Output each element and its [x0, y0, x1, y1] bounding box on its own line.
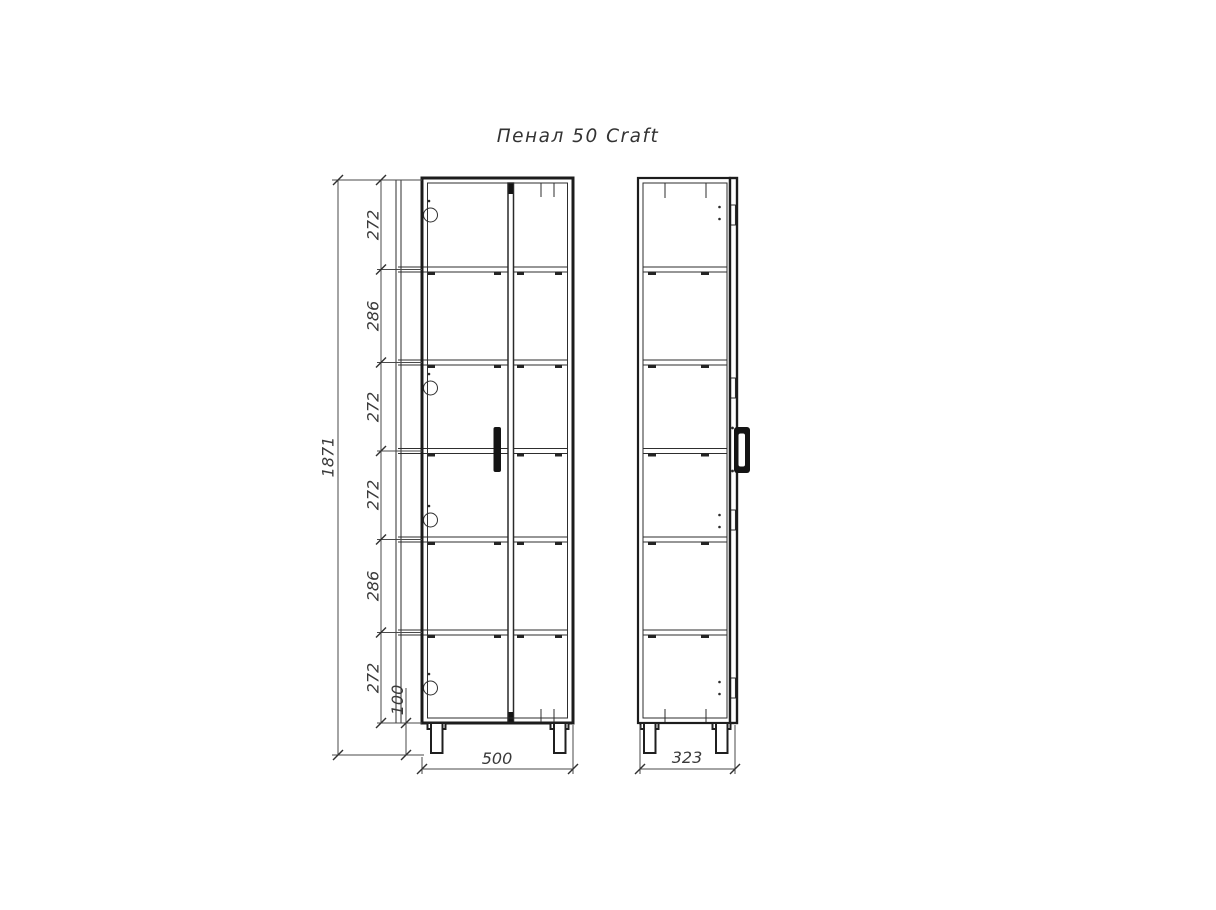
door-handle-front: [494, 427, 502, 472]
shelf-pin-hole: [718, 693, 721, 696]
shelf-pin-hole: [718, 206, 721, 209]
shelf-pin-hole: [718, 681, 721, 684]
hinge-cup-icon: [424, 505, 438, 527]
side-view: [638, 178, 750, 753]
dim-label-segment-3: 272: [364, 392, 383, 423]
adjustable-leg: [641, 723, 659, 753]
dim-label-leg-height: 100: [388, 685, 407, 716]
adjustable-leg: [428, 723, 446, 753]
dim-label-segment-2: 286: [364, 301, 383, 332]
adjustable-leg: [713, 723, 731, 753]
side-carcass-outline: [638, 178, 730, 723]
hinge-plate-icon: [731, 678, 736, 698]
dim-label-side-depth: 323: [672, 748, 703, 767]
dim-label-segment-4: 272: [364, 480, 383, 511]
dimension-annotations: 1871 272 286 272 272 286 272 100 500: [319, 175, 741, 774]
shelf-row: [643, 449, 727, 457]
shelf-pin-hole: [718, 514, 721, 517]
hinge-plate-icon: [731, 378, 736, 398]
hinge-cup-icon: [424, 200, 438, 222]
dim-label-front-width: 500: [482, 749, 513, 768]
hinge-plate-icon: [731, 510, 736, 530]
drawing-sheet: 1871 272 286 272 272 286 272 100 500: [0, 0, 1216, 910]
shelf-pin-hole: [718, 218, 721, 221]
shelf-pin-hole: [718, 526, 721, 529]
technical-drawing: 1871 272 286 272 272 286 272 100 500: [0, 0, 1216, 910]
dim-label-segment-6: 272: [364, 663, 383, 694]
dim-label-segment-5: 286: [364, 571, 383, 602]
center-divider: [508, 183, 514, 723]
hinge-plate-icon: [731, 205, 736, 225]
shelf-row: [643, 267, 727, 275]
shelf-row: [643, 537, 727, 545]
dim-label-overall-height: 1871: [319, 437, 338, 478]
drawing-title: Пенал 50 Craft: [497, 126, 659, 147]
front-view: [396, 178, 573, 753]
hinge-cup-icon: [424, 673, 438, 695]
adjustable-leg: [551, 723, 569, 753]
hinge-cup-icon: [424, 373, 438, 395]
dim-label-segment-1: 272: [364, 210, 383, 241]
shelf-row: [643, 360, 727, 368]
shelf-row: [643, 630, 727, 638]
divider-top-tenon: [509, 183, 514, 194]
